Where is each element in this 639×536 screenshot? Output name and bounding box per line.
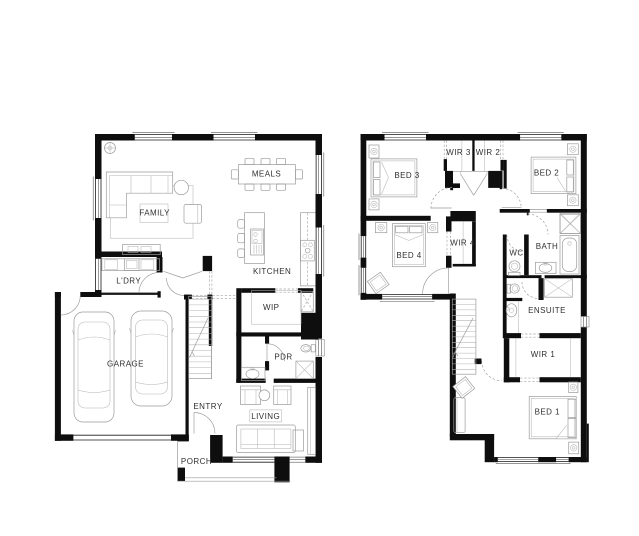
svg-text:BED 3: BED 3 — [394, 171, 419, 180]
svg-text:GARAGE: GARAGE — [107, 360, 144, 369]
svg-text:WIR 2: WIR 2 — [476, 148, 501, 157]
svg-text:WIR 3: WIR 3 — [446, 148, 471, 157]
svg-text:BATH: BATH — [536, 242, 559, 251]
svg-text:KITCHEN: KITCHEN — [253, 267, 291, 276]
svg-text:ENTRY: ENTRY — [193, 402, 222, 411]
svg-text:L'DRY: L'DRY — [116, 276, 141, 285]
svg-text:PDR: PDR — [274, 353, 292, 362]
svg-text:BED 2: BED 2 — [534, 169, 559, 178]
svg-text:MEALS: MEALS — [252, 170, 281, 179]
svg-text:PORCH: PORCH — [181, 457, 212, 466]
svg-text:FAMILY: FAMILY — [139, 209, 170, 218]
svg-text:WC: WC — [509, 249, 523, 258]
svg-text:BED 4: BED 4 — [396, 251, 421, 260]
svg-text:BED 1: BED 1 — [535, 407, 560, 416]
svg-text:LIVING: LIVING — [251, 412, 280, 421]
svg-text:WIP: WIP — [263, 303, 279, 312]
svg-text:ENSUITE: ENSUITE — [528, 306, 566, 315]
svg-text:WIR 1: WIR 1 — [531, 350, 556, 359]
svg-text:WIR 4: WIR 4 — [450, 239, 475, 248]
